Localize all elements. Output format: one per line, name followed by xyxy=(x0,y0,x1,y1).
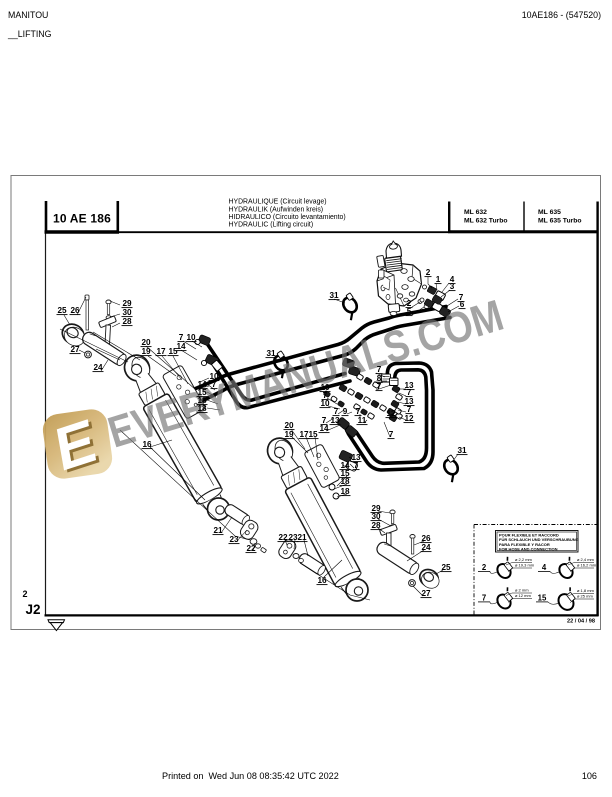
svg-text:5: 5 xyxy=(407,307,412,316)
svg-text:10: 10 xyxy=(186,333,196,342)
svg-text:25: 25 xyxy=(57,306,67,315)
svg-text:28: 28 xyxy=(371,521,381,530)
svg-text:10 AE 186: 10 AE 186 xyxy=(53,212,111,226)
svg-text:6: 6 xyxy=(460,300,465,309)
svg-text:9: 9 xyxy=(343,407,348,416)
svg-text:2: 2 xyxy=(482,563,487,572)
svg-text:ML 635 Turbo: ML 635 Turbo xyxy=(538,218,582,225)
svg-text:HYDRAULIK (Aufwinden kreis): HYDRAULIK (Aufwinden kreis) xyxy=(229,206,324,213)
svg-text:7: 7 xyxy=(334,407,339,416)
svg-text:ø 12 mm: ø 12 mm xyxy=(515,593,531,598)
svg-text:20: 20 xyxy=(284,421,294,430)
svg-text:ø 16,2 mm: ø 16,2 mm xyxy=(577,563,597,568)
svg-text:ø 2 mm: ø 2 mm xyxy=(515,588,529,593)
svg-text:14: 14 xyxy=(319,424,329,433)
svg-text:7: 7 xyxy=(389,430,394,439)
svg-text:106: 106 xyxy=(582,771,597,781)
svg-text:ø 19,3 mm: ø 19,3 mm xyxy=(515,563,535,568)
svg-text:18: 18 xyxy=(340,477,350,486)
svg-text:ML 635: ML 635 xyxy=(538,209,561,216)
svg-text:7: 7 xyxy=(407,388,412,397)
svg-text:1: 1 xyxy=(436,275,441,284)
svg-text:18: 18 xyxy=(340,487,350,496)
svg-text:2: 2 xyxy=(426,268,431,277)
svg-text:Printed on Wed Jun 08 08:35:4: Printed on Wed Jun 08 08:35:42 UTC 2022 xyxy=(162,771,339,781)
svg-text:16: 16 xyxy=(142,440,152,449)
svg-text:30: 30 xyxy=(122,308,132,317)
svg-text:HIDRAULICO (Circuito levantami: HIDRAULICO (Circuito levantamiento) xyxy=(229,214,346,221)
svg-text:20: 20 xyxy=(141,338,151,347)
svg-text:16: 16 xyxy=(317,576,327,585)
svg-text:ø 1,8 mm: ø 1,8 mm xyxy=(577,588,595,593)
svg-text:ø 2,2 mm: ø 2,2 mm xyxy=(515,557,533,562)
svg-text:15: 15 xyxy=(308,430,318,439)
svg-text:10AE186 - (547520): 10AE186 - (547520) xyxy=(522,10,601,20)
svg-text:17: 17 xyxy=(156,347,166,356)
svg-text:MANITOU: MANITOU xyxy=(8,10,48,20)
svg-text:25: 25 xyxy=(441,563,451,572)
svg-text:31: 31 xyxy=(457,446,467,455)
svg-text:4: 4 xyxy=(542,563,547,572)
svg-text:19: 19 xyxy=(141,347,151,356)
svg-text:21: 21 xyxy=(297,533,307,542)
svg-text:7: 7 xyxy=(179,333,184,342)
svg-text:ML 632: ML 632 xyxy=(464,209,487,216)
svg-text:23: 23 xyxy=(229,535,239,544)
svg-text:HYDRAULIQUE (Circuit levage): HYDRAULIQUE (Circuit levage) xyxy=(229,199,327,206)
svg-text:10: 10 xyxy=(320,399,330,408)
svg-text:22: 22 xyxy=(278,533,288,542)
svg-text:27: 27 xyxy=(70,345,80,354)
svg-text:__LIFTING: __LIFTING xyxy=(7,29,52,39)
svg-text:7: 7 xyxy=(407,405,412,414)
svg-text:22: 22 xyxy=(246,544,256,553)
svg-text:30: 30 xyxy=(371,512,381,521)
svg-text:11: 11 xyxy=(358,416,367,425)
svg-text:7: 7 xyxy=(377,382,382,391)
svg-text:3: 3 xyxy=(450,282,455,291)
svg-text:12: 12 xyxy=(386,409,396,418)
svg-text:7: 7 xyxy=(356,407,361,416)
svg-text:24: 24 xyxy=(421,543,431,552)
svg-text:13: 13 xyxy=(330,416,340,425)
svg-text:27: 27 xyxy=(421,589,431,598)
svg-text:31: 31 xyxy=(266,349,276,358)
svg-text:ML 632 Turbo: ML 632 Turbo xyxy=(464,218,508,225)
svg-text:7: 7 xyxy=(482,594,486,603)
svg-text:21: 21 xyxy=(213,526,223,535)
svg-text:26: 26 xyxy=(70,306,80,315)
svg-text:18: 18 xyxy=(197,404,207,413)
svg-text:ø 25 mm: ø 25 mm xyxy=(577,594,593,599)
svg-text:2: 2 xyxy=(22,589,27,599)
svg-text:HYDRAULIC (Lifting circuit): HYDRAULIC (Lifting circuit) xyxy=(229,222,314,229)
svg-text:FOR HOSE AND CONNECTION: FOR HOSE AND CONNECTION xyxy=(499,546,558,551)
svg-text:7: 7 xyxy=(377,365,382,374)
svg-text:12: 12 xyxy=(404,414,414,423)
svg-text:19: 19 xyxy=(284,430,294,439)
svg-text:14: 14 xyxy=(176,342,186,351)
svg-text:7: 7 xyxy=(212,380,217,389)
svg-text:15: 15 xyxy=(538,594,547,603)
svg-text:22 / 04 / 98: 22 / 04 / 98 xyxy=(567,619,595,625)
svg-text:J2: J2 xyxy=(25,602,40,617)
svg-text:26: 26 xyxy=(421,534,431,543)
svg-text:15: 15 xyxy=(168,347,178,356)
svg-text:31: 31 xyxy=(329,291,339,300)
svg-text:28: 28 xyxy=(122,317,132,326)
svg-text:ø 2,4 mm: ø 2,4 mm xyxy=(577,557,595,562)
svg-text:7: 7 xyxy=(354,461,359,470)
svg-text:24: 24 xyxy=(93,363,103,372)
svg-text:29: 29 xyxy=(122,299,132,308)
